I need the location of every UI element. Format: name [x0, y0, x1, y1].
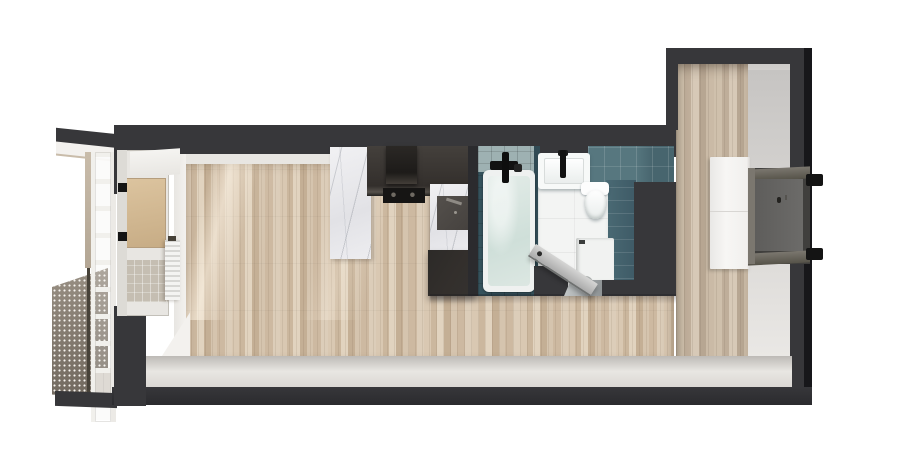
bathroom-right-wall — [634, 182, 676, 296]
oven-handle — [446, 198, 462, 206]
washing-machine-controls — [579, 240, 585, 244]
balcony-door-upper-pane — [126, 178, 166, 248]
wardrobe — [710, 157, 750, 269]
balcony-door-lower-pane — [126, 260, 168, 302]
balcony-door-hinge-icon — [118, 183, 127, 192]
bathtub-basin — [488, 176, 530, 286]
door-lock-icon — [785, 195, 787, 200]
kitchen-marble-counter — [330, 147, 371, 259]
tub-faucet-spout — [502, 152, 509, 183]
entry-door-frame-left — [748, 168, 755, 264]
keyhole-icon — [777, 197, 781, 203]
entry-door-hinge-icon — [806, 174, 823, 186]
entry-door — [755, 179, 803, 251]
balcony-door-hinge-icon — [118, 232, 127, 241]
radiator — [165, 240, 180, 300]
entry-door-frame-bottom — [748, 250, 810, 265]
range-hood — [386, 146, 417, 184]
sink-faucet — [560, 150, 566, 178]
wall-cast-shadow — [430, 294, 676, 304]
bottom-wall — [112, 387, 812, 405]
cooktop — [383, 188, 425, 203]
oven — [437, 196, 471, 230]
entry-door-niche — [748, 168, 810, 264]
bathtub — [483, 170, 535, 292]
entry-door-hinge-icon — [806, 248, 823, 260]
railing-post — [87, 268, 90, 400]
tub-faucet-knob — [514, 164, 522, 172]
bottom-wall-inner-face — [140, 356, 792, 390]
balcony-glazing-frame — [91, 152, 116, 422]
floor-plan-render — [0, 0, 900, 450]
radiator-bracket — [168, 236, 176, 241]
balcony-door-head-frame — [130, 148, 180, 177]
oven-knob — [454, 211, 457, 214]
left-wall-lower — [114, 306, 146, 406]
door-handle — [536, 250, 543, 257]
balcony-bottom-wall — [55, 391, 117, 408]
